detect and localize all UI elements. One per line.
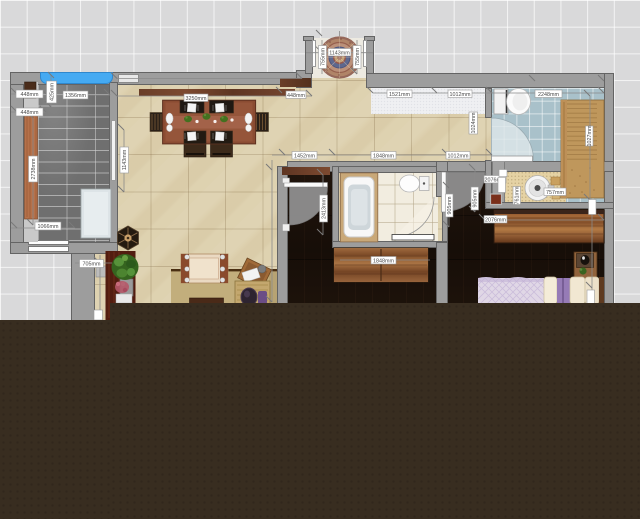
svg-text:761mm: 761mm [515,186,521,204]
svg-text:755mm: 755mm [321,48,327,66]
svg-text:2738mm: 2738mm [31,158,37,179]
svg-text:905mm: 905mm [473,189,479,207]
svg-text:425mm: 425mm [50,83,56,101]
svg-text:1143mm: 1143mm [122,149,128,170]
svg-text:2413mm: 2413mm [322,198,328,219]
svg-text:1521mm: 1521mm [389,92,410,98]
svg-text:1452mm: 1452mm [294,154,315,160]
svg-text:1848mm: 1848mm [373,259,394,265]
svg-text:448mm: 448mm [287,93,305,99]
svg-text:1066mm: 1066mm [38,224,59,230]
svg-text:905mm: 905mm [447,196,453,214]
svg-text:448mm: 448mm [21,92,39,98]
svg-text:705mm: 705mm [83,262,101,268]
svg-text:755mm: 755mm [355,48,361,66]
svg-text:448mm: 448mm [21,110,39,116]
svg-text:1024mm: 1024mm [471,112,477,133]
svg-text:1848mm: 1848mm [373,154,394,160]
svg-text:1012mm: 1012mm [450,92,471,98]
svg-text:1356mm: 1356mm [65,93,86,99]
svg-text:3250mm: 3250mm [186,96,207,102]
svg-text:1012mm: 1012mm [448,154,469,160]
svg-text:757mm: 757mm [546,190,564,196]
svg-text:2076mm: 2076mm [485,218,506,224]
svg-text:1143mm: 1143mm [329,51,350,57]
svg-text:1027mm: 1027mm [587,125,593,146]
svg-text:2248mm: 2248mm [538,92,559,98]
